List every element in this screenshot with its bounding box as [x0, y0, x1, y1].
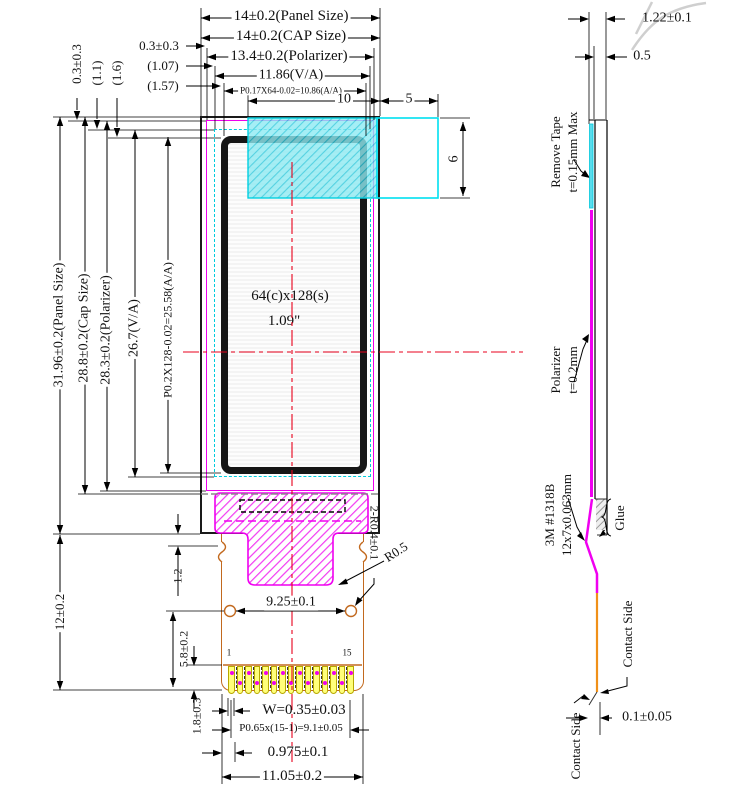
dim-pad-pitch: P0.65x(15-1)=9.1±0.05	[237, 723, 345, 735]
dim-ledge: 1.2	[172, 567, 185, 586]
dim-aa-height: P0.2X128-0.02=25.58(A/A)	[162, 260, 175, 400]
remove-tape-label-line2: t=0.15mm Max	[566, 110, 580, 195]
offset-h-va: (1.07)	[145, 59, 180, 73]
offset-v-va: (1.1)	[90, 59, 104, 88]
side-fpc-bend	[586, 499, 597, 593]
adhesive-label-line1: 3M #1318B	[543, 482, 557, 548]
dim-fpc-length: 12±0.2	[53, 592, 67, 632]
polarizer-label-line1: Polarizer	[549, 345, 563, 396]
adhesive-label-line2: 12x7x0.063mm	[560, 472, 574, 558]
offset-h-aa: (1.57)	[145, 79, 180, 93]
dim-tape-width: 10	[335, 93, 353, 108]
dim-hole-offset: 5.8±0.2	[178, 629, 191, 670]
dim-tape-overhang: 5	[404, 93, 415, 108]
centerlines	[183, 162, 523, 762]
glue-label: Glue	[613, 503, 627, 532]
dim-cap-width: 14±0.2(CAP Size)	[234, 29, 348, 45]
remove-tape-label-line1: Remove Tape	[549, 114, 563, 189]
alignment-hole-left	[225, 606, 236, 617]
side-polarizer-layer	[590, 210, 593, 497]
dim-fpc-width: 11.05±0.2	[260, 769, 324, 785]
side-tape-layer	[590, 124, 594, 208]
dim-pad-height: 1.8±0.3	[191, 696, 204, 737]
dim-pad-width: W=0.35±0.03	[260, 703, 347, 719]
dim-glass-thickness: 0.5	[631, 50, 653, 65]
leader-arrowheads	[338, 170, 609, 700]
offset-v-polarizer: 0.3±0.3	[70, 42, 84, 86]
dim-polarizer-height: 28.3±0.2(Polarizer)	[100, 273, 115, 387]
dim-hole-radius: 2-R0.4±0.1	[368, 504, 381, 563]
dim-polarizer-width: 13.4±0.2(Polarizer)	[228, 49, 349, 65]
dim-panel-width: 14±0.2(Panel Size)	[232, 9, 351, 25]
contact-side-label-right: Contact Side	[621, 599, 635, 670]
dim-fpc-offset: 0.1±0.05	[620, 711, 674, 726]
mechanical-drawing: 64(c)x128(s) 1.09"	[0, 0, 750, 798]
alignment-hole-right	[346, 606, 357, 617]
dim-cap-height: 28.8±0.2(Cap Size)	[78, 271, 93, 384]
pin-number-last: 15	[341, 648, 354, 657]
leader-lines	[344, 160, 627, 703]
dim-tape-height: 6	[448, 154, 463, 165]
dim-va-width: 11.86(V/A)	[257, 69, 325, 84]
pin-number-first: 1	[225, 648, 234, 657]
dim-edge-offset: 0.975±0.1	[266, 745, 331, 761]
offset-h-polarizer: 0.3±0.3	[137, 39, 181, 53]
side-view	[586, 120, 611, 705]
dim-total-thickness: 1.22±0.1	[640, 12, 694, 27]
tape-region	[248, 118, 438, 198]
dim-hole-pitch: 9.25±0.1	[264, 596, 318, 611]
bend-tape-region	[201, 493, 380, 585]
dim-va-height: 26.7(V/A)	[128, 297, 143, 359]
dim-panel-height: 31.96±0.2(Panel Size)	[53, 261, 68, 390]
contact-side-label-bottom: Contact Side	[569, 711, 583, 782]
dimension-lines	[0, 0, 750, 798]
offset-v-aa: (1.6)	[110, 59, 124, 88]
polarizer-label-line2: t=0.2mm	[566, 344, 580, 395]
dim-aa-width: P0.17X64-0.02=10.86(A/A)	[238, 86, 344, 95]
side-fpc-tip	[589, 692, 597, 705]
